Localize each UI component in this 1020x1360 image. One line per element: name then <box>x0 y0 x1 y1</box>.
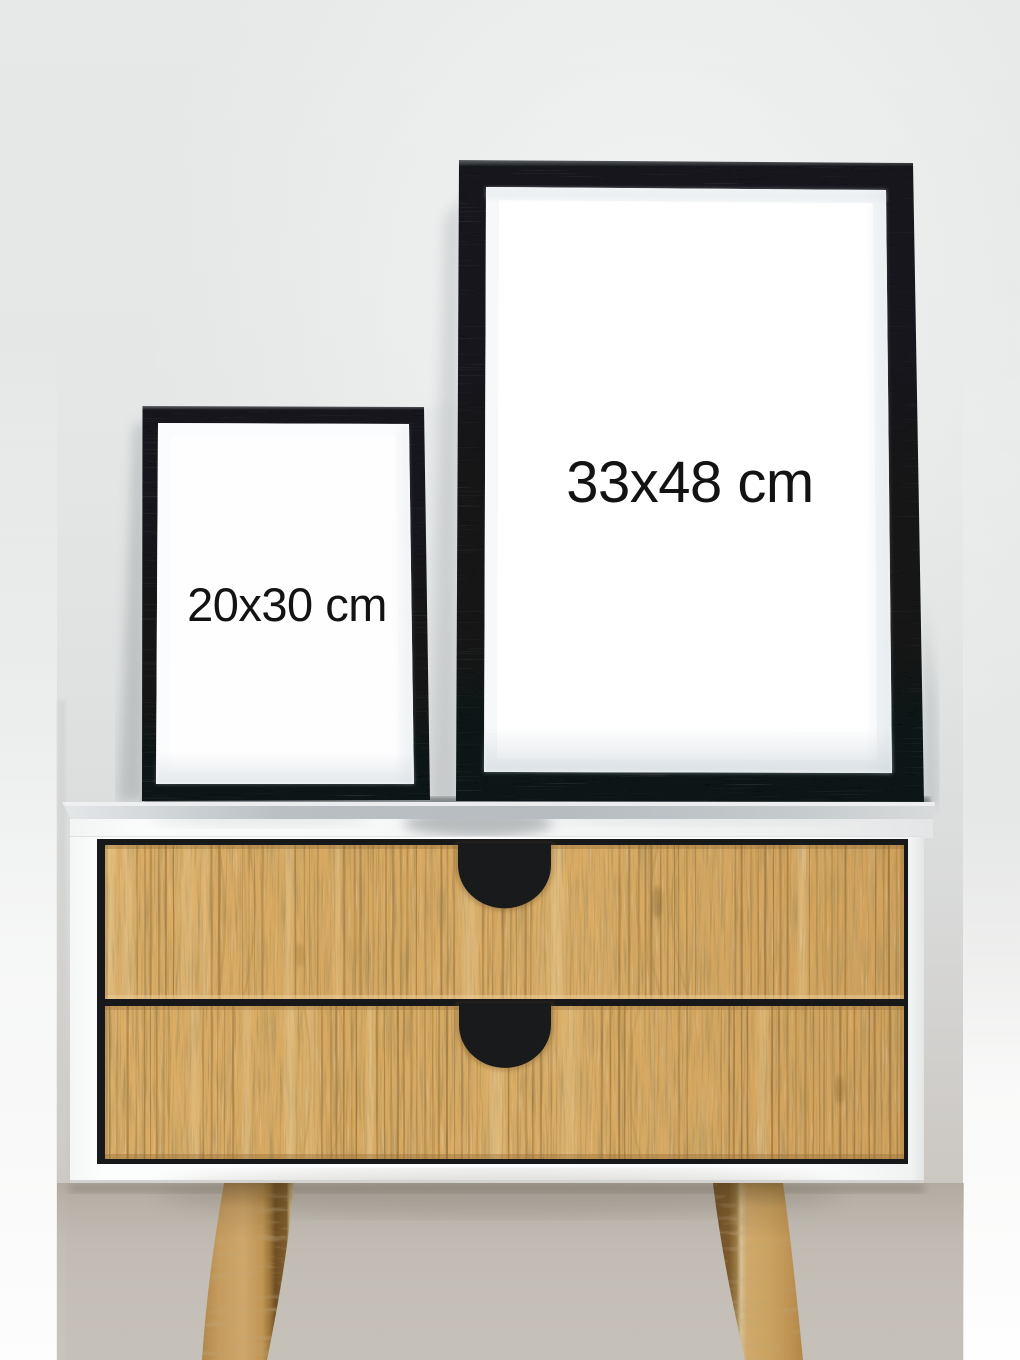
svg-text:20x30 cm: 20x30 cm <box>187 578 387 631</box>
svg-text:33x48 cm: 33x48 cm <box>566 450 813 515</box>
